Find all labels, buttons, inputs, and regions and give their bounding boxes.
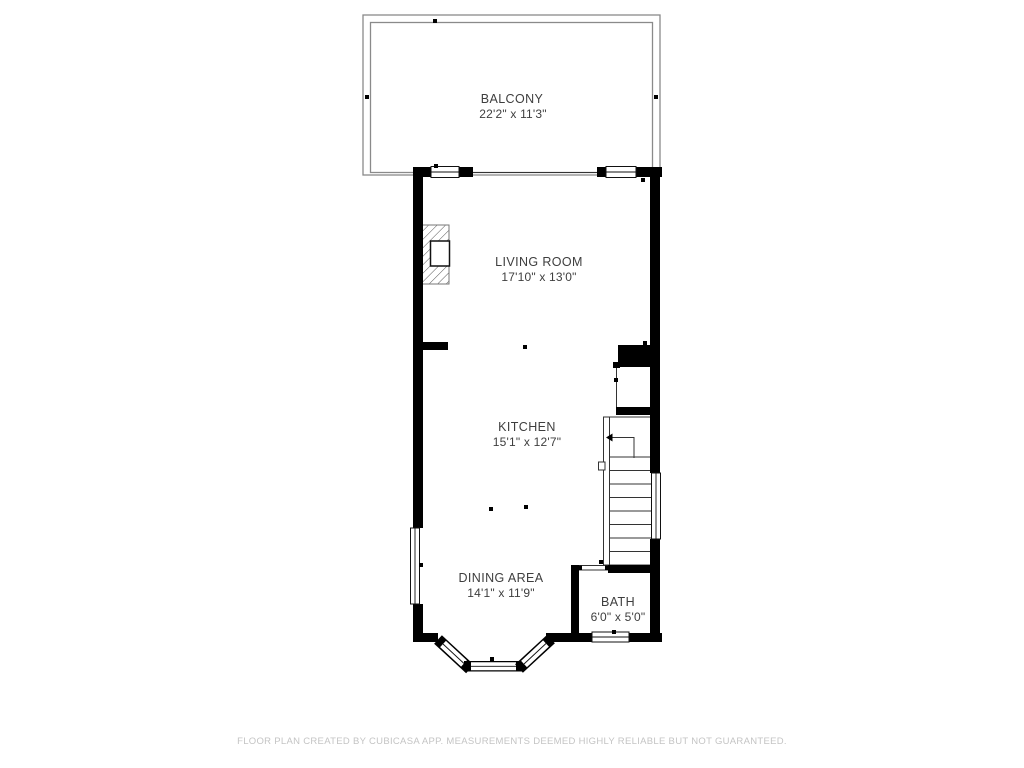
fireplace (422, 225, 450, 284)
chimney-block (618, 345, 660, 367)
living-room-label: LIVING ROOM (495, 255, 583, 269)
bath-door (579, 566, 608, 571)
kitchen-dims: 15'1" x 12'7" (493, 435, 561, 449)
balcony-dims: 22'2" x 11'3" (479, 107, 547, 121)
dining-area-dims: 14'1" x 11'9" (467, 586, 535, 600)
floor-plan-page: BALCONY 22'2" x 11'3" LIVING ROOM 17'10"… (0, 0, 1024, 768)
staircase (599, 417, 653, 565)
bath-dims: 6'0" x 5'0" (591, 610, 646, 624)
balcony-label: BALCONY (481, 92, 544, 106)
dining-area-label: DINING AREA (459, 571, 544, 585)
disclaimer-text: FLOOR PLAN CREATED BY CUBICASA APP. MEAS… (0, 736, 1024, 747)
openings (459, 173, 617, 571)
bath-left-wall (571, 565, 579, 642)
stair-notch (599, 462, 606, 470)
living-room-dims: 17'10" x 13'0" (501, 270, 576, 284)
floor-plan-canvas: BALCONY 22'2" x 11'3" LIVING ROOM 17'10"… (0, 0, 1024, 768)
kitchen-label: KITCHEN (498, 420, 556, 434)
bath-label: BATH (601, 595, 635, 609)
bay-window (438, 639, 551, 669)
bath-top-wall (608, 565, 660, 573)
wall-stub (413, 342, 448, 350)
